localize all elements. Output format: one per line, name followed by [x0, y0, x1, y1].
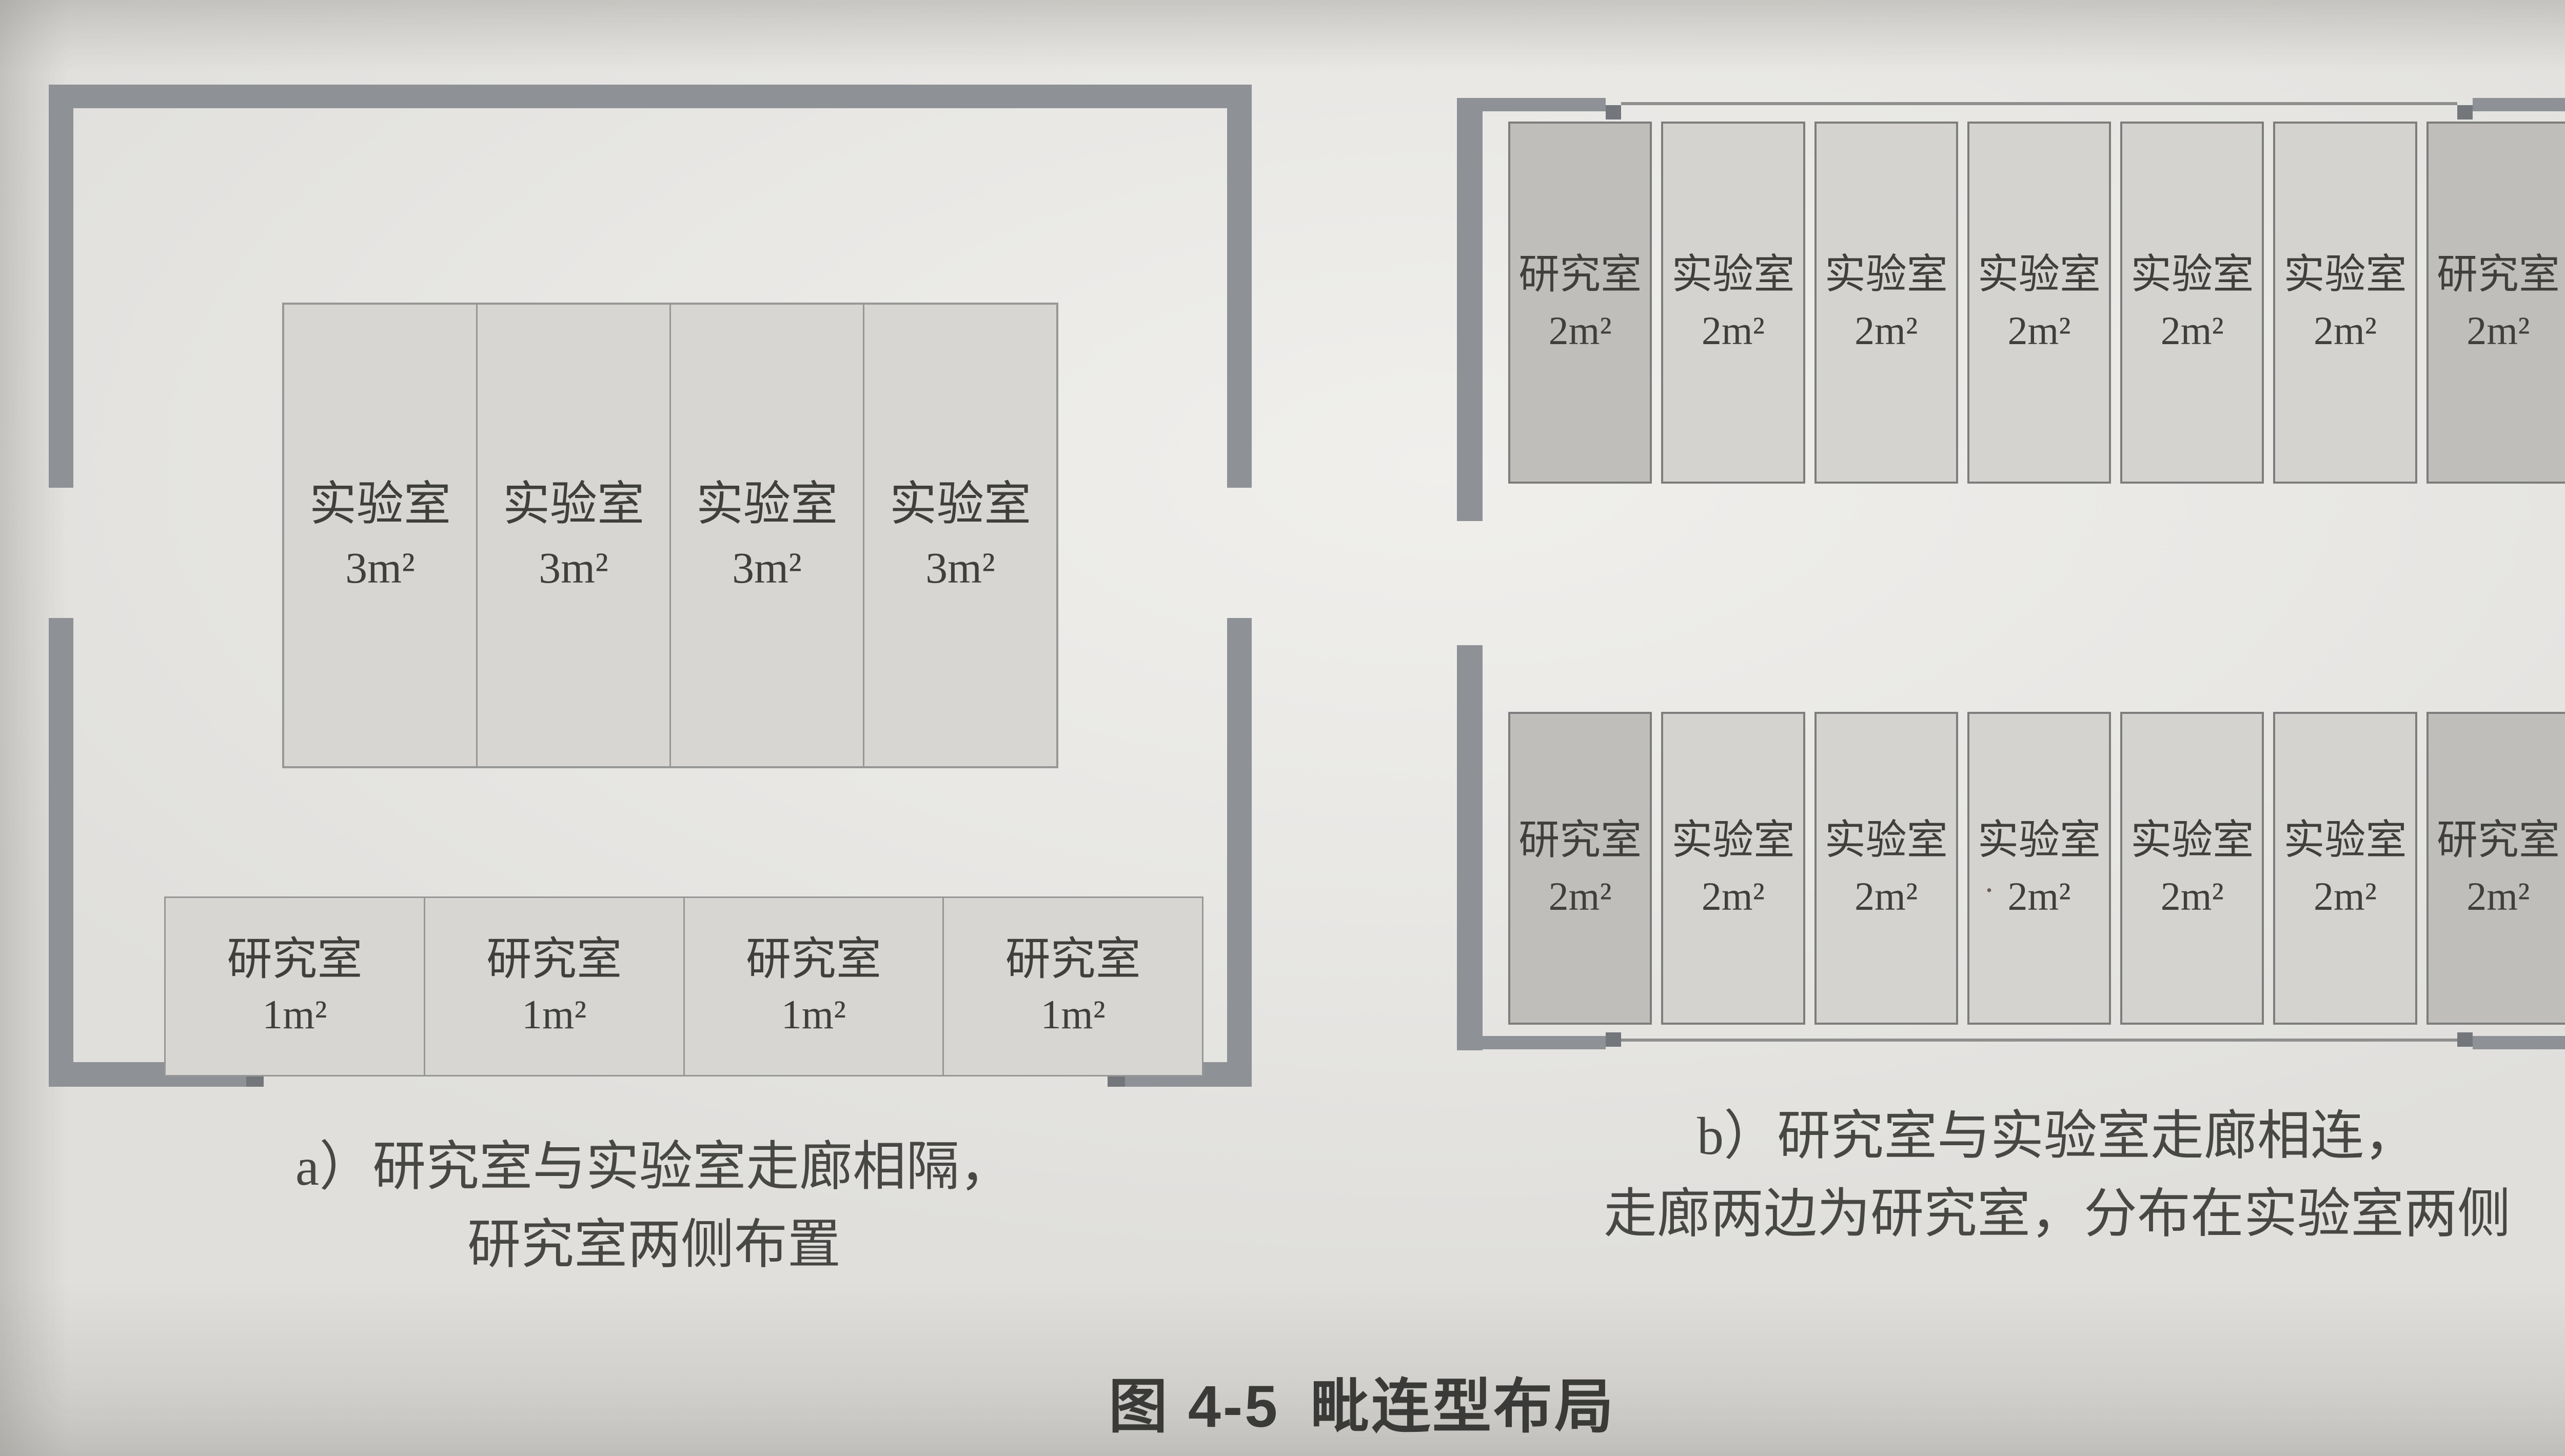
- room-area: 1m²: [781, 992, 846, 1038]
- room: 实验室2m²: [1814, 122, 1958, 484]
- b-door-jamb-bottom-right: [2457, 1032, 2473, 1047]
- room: 研究室2m²: [2426, 712, 2565, 1025]
- room-name: 实验室: [1671, 818, 1794, 863]
- room-name: 研究室: [1518, 252, 1642, 297]
- room-name: 实验室: [1978, 818, 2101, 863]
- room-area: 2m²: [1549, 874, 1612, 919]
- room-name: 实验室: [2284, 252, 2407, 297]
- room-area: 3m²: [732, 544, 802, 592]
- room: 实验室3m²: [669, 305, 863, 766]
- room-area: 2m²: [1854, 309, 1918, 353]
- room-name: 研究室: [1005, 935, 1141, 985]
- room-area: 2m²: [2467, 874, 2530, 919]
- room-name: 实验室: [696, 478, 838, 530]
- room: 实验室2m²: [1967, 122, 2111, 484]
- room-name: 研究室: [227, 935, 362, 985]
- room-area: 1m²: [1041, 992, 1106, 1038]
- diagram-b-floorplan: 研究室2m²实验室2m²实验室2m²实验室2m²实验室2m²实验室2m²研究室2…: [1457, 90, 2565, 1087]
- room-area: 3m²: [539, 544, 608, 592]
- room-area: 2m²: [2007, 309, 2070, 353]
- room: 研究室1m²: [683, 898, 943, 1075]
- room-area: 2m²: [1549, 309, 1612, 353]
- b-wall-left-lower-segment: [1457, 645, 1483, 1050]
- room-name: 实验室: [2130, 252, 2254, 297]
- room: 实验室2m²: [2120, 122, 2264, 484]
- room-area: 2m²: [2007, 874, 2070, 919]
- room: 实验室2m²·: [1967, 712, 2111, 1025]
- room-name: 实验室: [1978, 252, 2101, 297]
- room: 实验室2m²: [1814, 712, 1958, 1025]
- room-name: 实验室: [1825, 818, 1948, 863]
- a-wall-top: [49, 85, 1252, 108]
- room: 研究室1m²: [424, 898, 683, 1075]
- a-wall-left-upper-segment: [49, 108, 73, 488]
- room-name: 研究室: [746, 935, 881, 985]
- room-area: 1m²: [262, 992, 327, 1038]
- diagram-a-floorplan: 实验室3m²实验室3m²实验室3m²实验室3m² 研究室1m²研究室1m²研究室…: [49, 85, 1252, 1090]
- room-area: 1m²: [522, 992, 586, 1038]
- room: 实验室3m²: [284, 305, 476, 766]
- b-wall-bottom-right-stub: [2473, 1036, 2565, 1049]
- room: 实验室2m²: [2120, 712, 2264, 1025]
- room-name: 实验室: [1825, 252, 1948, 297]
- room: 研究室2m²: [1508, 122, 1652, 484]
- print-artifact-dot: ·: [1984, 874, 1995, 907]
- room: 研究室1m²: [942, 898, 1202, 1075]
- figure-title: 毗连型布局: [1310, 1374, 1615, 1440]
- b-door-jamb-top-right: [2457, 105, 2473, 119]
- a-wall-right-upper-segment: [1227, 108, 1252, 488]
- b-door-jamb-bottom-left: [1606, 1032, 1621, 1047]
- room-name: 研究室: [2437, 252, 2560, 297]
- room: 实验室3m²: [476, 305, 669, 766]
- b-door-jamb-top-left: [1606, 105, 1621, 119]
- figure-caption: 图 4-5毗连型布局: [823, 1359, 1901, 1444]
- a-research-room-row: 研究室1m²研究室1m²研究室1m²研究室1m²: [164, 896, 1203, 1076]
- b-room-row-bottom: 研究室2m²实验室2m²实验室2m²实验室2m²·实验室2m²实验室2m²研究室…: [1508, 712, 2565, 1025]
- room: 研究室2m²: [2426, 122, 2565, 484]
- room: 实验室2m²: [1661, 712, 1805, 1025]
- room-area: 3m²: [925, 544, 995, 592]
- caption-a-line2: 研究室两侧布置: [154, 1206, 1154, 1284]
- room-area: 2m²: [2161, 874, 2224, 919]
- room-name: 实验室: [309, 478, 451, 530]
- scanned-book-page: 实验室3m²实验室3m²实验室3m²实验室3m² 研究室1m²研究室1m²研究室…: [0, 0, 2565, 1456]
- room-area: 3m²: [345, 544, 415, 592]
- room-name: 研究室: [486, 935, 622, 985]
- room-name: 研究室: [2437, 818, 2560, 863]
- b-wall-bottom-left-stub: [1457, 1036, 1606, 1049]
- room-name: 实验室: [2130, 818, 2254, 863]
- caption-diagram-a: a）研究室与实验室走廊相隔， 研究室两侧布置: [154, 1128, 1154, 1284]
- room: 实验室2m²: [2273, 122, 2417, 484]
- room: 实验室2m²: [1661, 122, 1805, 484]
- caption-b-line1: b）研究室与实验室走廊相连，: [1488, 1098, 2565, 1175]
- b-wall-top-right-segment: [2473, 98, 2565, 111]
- room-name: 实验室: [890, 478, 1031, 530]
- figure-number: 图 4-5: [1109, 1374, 1279, 1440]
- caption-a-line1: a）研究室与实验室走廊相隔，: [154, 1128, 1154, 1206]
- room-area: 2m²: [2314, 309, 2377, 353]
- a-lab-room-block: 实验室3m²实验室3m²实验室3m²实验室3m²: [282, 303, 1058, 768]
- room: 实验室2m²: [2273, 712, 2417, 1025]
- room-name: 研究室: [1518, 818, 1642, 863]
- room-area: 2m²: [1854, 874, 1918, 919]
- b-bottom-opening-line: [1621, 1039, 2457, 1042]
- room-area: 2m²: [2161, 309, 2224, 353]
- room-area: 2m²: [1702, 309, 1765, 353]
- room-name: 实验室: [1671, 252, 1794, 297]
- room: 实验室3m²: [863, 305, 1056, 766]
- room-area: 2m²: [2314, 874, 2377, 919]
- room: 研究室1m²: [166, 898, 424, 1075]
- room-area: 2m²: [2467, 309, 2530, 353]
- caption-diagram-b: b）研究室与实验室走廊相连， 走廊两边为研究室，分布在实验室两侧: [1488, 1098, 2565, 1253]
- a-wall-right-lower-segment: [1227, 618, 1252, 1062]
- b-wall-left-upper-segment: [1457, 98, 1483, 521]
- a-wall-left-lower-segment: [49, 618, 73, 1062]
- b-room-row-top: 研究室2m²实验室2m²实验室2m²实验室2m²实验室2m²实验室2m²研究室2…: [1508, 122, 2565, 484]
- room-name: 实验室: [503, 478, 644, 530]
- b-top-opening-line: [1621, 102, 2457, 105]
- caption-b-line2: 走廊两边为研究室，分布在实验室两侧: [1488, 1175, 2565, 1253]
- room-area: 2m²: [1702, 874, 1765, 919]
- room: 研究室2m²: [1508, 712, 1652, 1025]
- room-name: 实验室: [2284, 818, 2407, 863]
